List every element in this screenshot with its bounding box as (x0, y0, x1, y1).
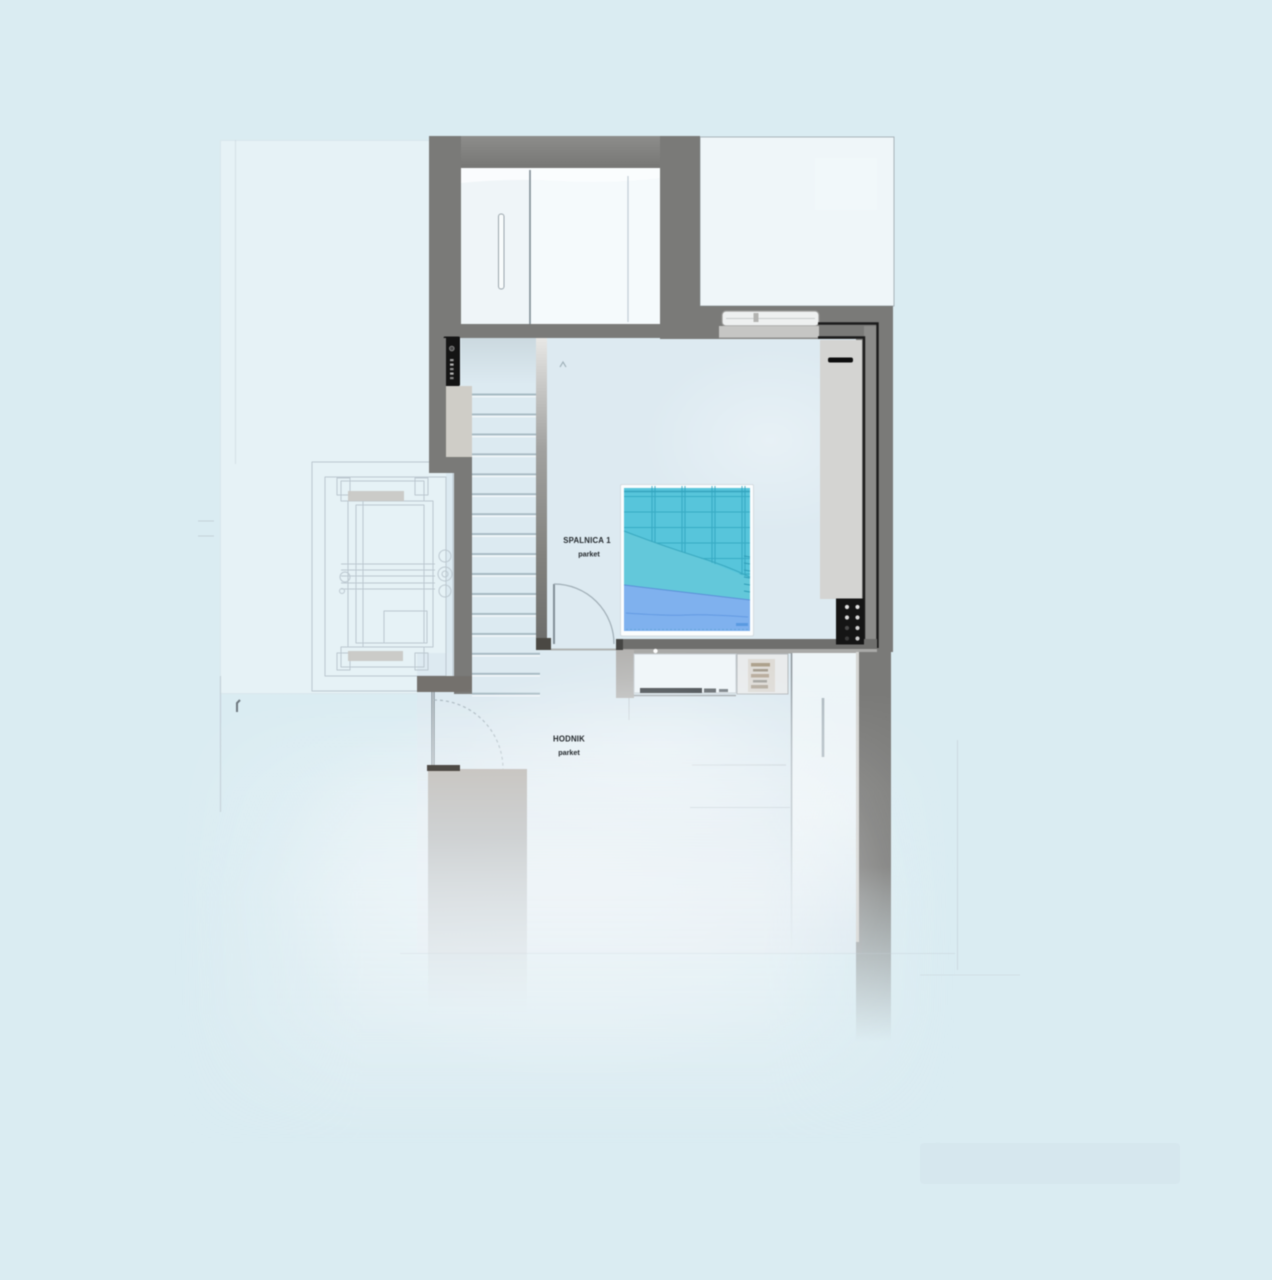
svg-text:HODNIK: HODNIK (553, 735, 585, 744)
svg-text:SPALNICA 1: SPALNICA 1 (563, 536, 611, 545)
svg-text:parket: parket (578, 550, 600, 559)
svg-text:parket: parket (558, 748, 580, 757)
